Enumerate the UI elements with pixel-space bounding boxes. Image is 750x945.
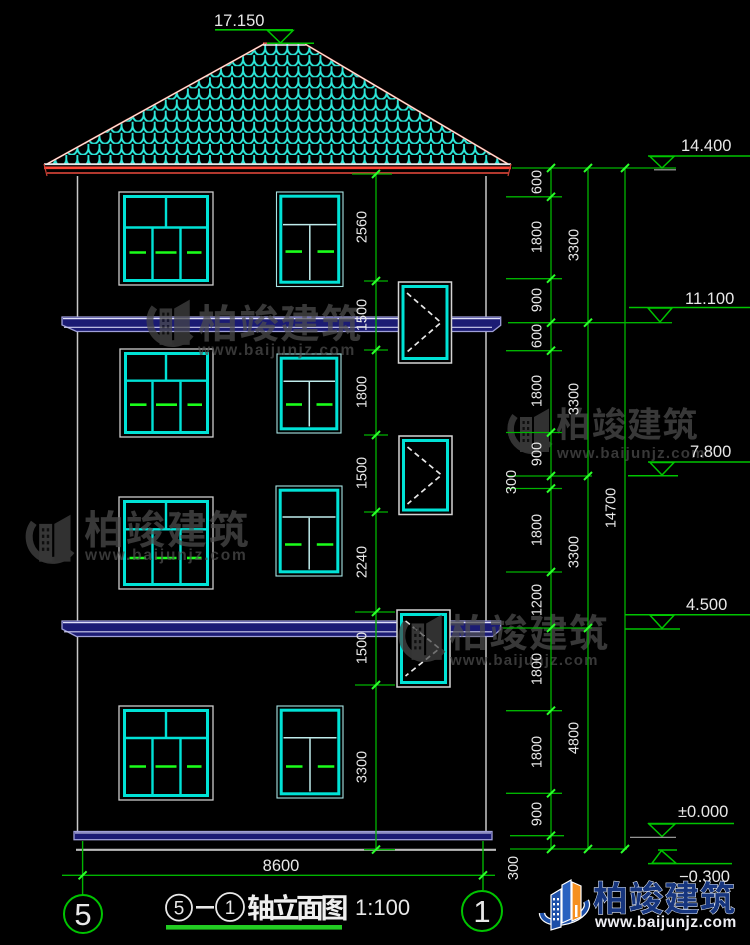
svg-text:www.baijunjz.com: www.baijunjz.com [594,914,737,931]
svg-text:1800: 1800 [530,653,546,685]
svg-text:3300: 3300 [567,383,583,415]
svg-text:17.150: 17.150 [214,12,264,30]
svg-text:300: 300 [504,470,520,494]
svg-text:3300: 3300 [567,536,583,568]
svg-text:1: 1 [473,894,490,929]
svg-text:4.500: 4.500 [686,596,727,614]
svg-text:600: 600 [530,324,546,348]
svg-text:900: 900 [530,802,546,826]
svg-text:1500: 1500 [355,457,371,489]
svg-text:600: 600 [530,170,546,194]
svg-text:1: 1 [225,898,236,919]
svg-text:1800: 1800 [355,376,371,408]
svg-text:2560: 2560 [355,211,371,243]
svg-text:14700: 14700 [604,488,620,528]
svg-text:5: 5 [74,897,91,932]
svg-text:1800: 1800 [530,514,546,546]
svg-text:11.100: 11.100 [685,290,734,308]
svg-text:8600: 8600 [263,857,300,875]
svg-text:1200: 1200 [530,584,546,616]
svg-text:www.baijunjz.com: www.baijunjz.com [84,547,248,564]
svg-text:7.800: 7.800 [690,443,731,461]
svg-text:2240: 2240 [355,546,371,578]
svg-text:www.baijunjz.com: www.baijunjz.com [449,652,599,669]
svg-text:14.400: 14.400 [681,137,731,155]
svg-text:4800: 4800 [567,722,583,754]
svg-text:1500: 1500 [355,632,371,664]
svg-text:1800: 1800 [530,221,546,253]
svg-text:3300: 3300 [355,751,371,783]
svg-text:900: 900 [530,442,546,466]
svg-text:±0.000: ±0.000 [678,803,728,821]
svg-text:300: 300 [506,856,522,880]
svg-text:1500: 1500 [355,299,371,331]
svg-text:1:100: 1:100 [355,895,410,920]
svg-text:1800: 1800 [530,375,546,407]
svg-text:www.baijunjz.com: www.baijunjz.com [197,342,356,359]
svg-text:900: 900 [530,288,546,312]
svg-text:www.baijunjz.com: www.baijunjz.com [556,445,706,462]
svg-text:5: 5 [174,899,185,920]
svg-text:3300: 3300 [567,229,583,261]
svg-text:1800: 1800 [530,736,546,768]
